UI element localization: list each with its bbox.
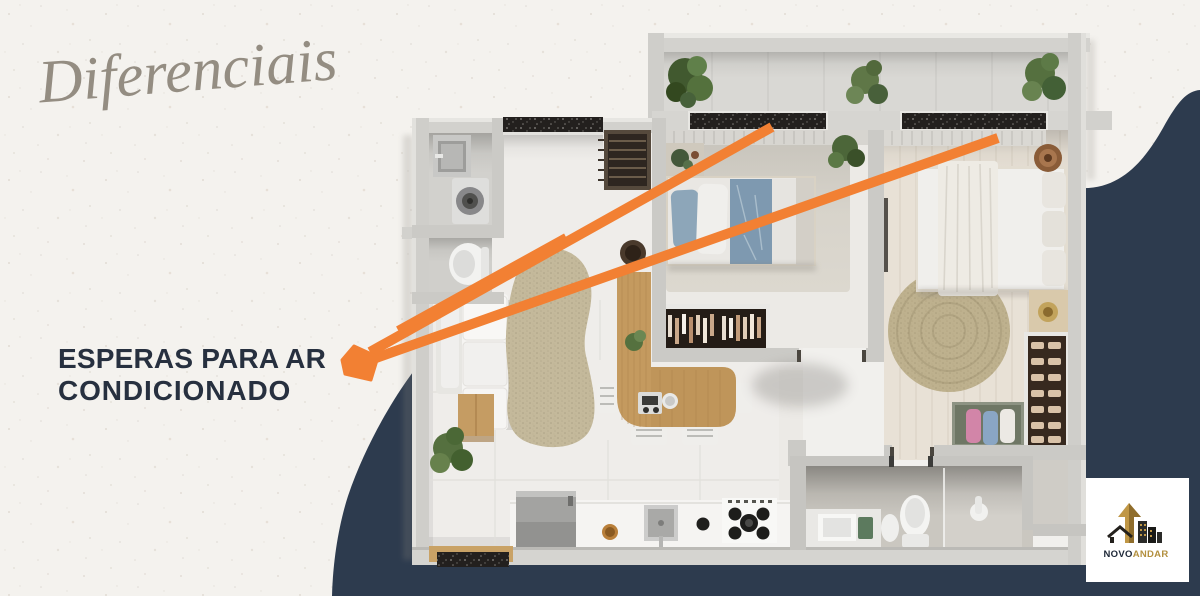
svg-text:CONDICIONADO: CONDICIONADO bbox=[58, 375, 291, 406]
svg-text:NOVOANDAR: NOVOANDAR bbox=[1104, 549, 1169, 560]
svg-text:ESPERAS PARA AR: ESPERAS PARA AR bbox=[58, 343, 326, 374]
